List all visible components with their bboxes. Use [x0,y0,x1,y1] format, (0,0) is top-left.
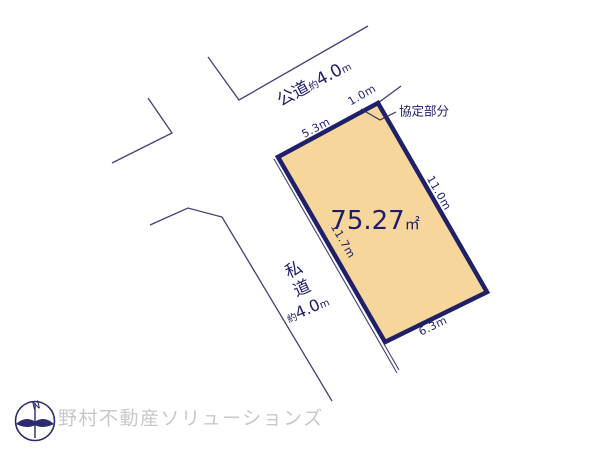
road-edge-west-corner [112,98,172,163]
road-edge-northeast-extension [378,86,401,103]
land-plot-diagram: N 公道約4.0m 5.3m 1.0m 11.0m 11.7m 6.3m 協定部… [0,0,600,450]
agreement-portion-label: 協定部分 [399,101,449,120]
plot-area-value: 75.27 [330,206,404,236]
private-road-name: 私道 [279,259,312,303]
company-watermark: 野村不動産ソリューションズ [58,404,324,431]
diagram-canvas: N [0,0,600,450]
plot-area-label: 75.27㎡ [330,206,419,236]
compass-n-letter: N [31,398,42,413]
plot-south-corner-extension-line [384,344,399,370]
compass-north-icon: N [16,398,55,440]
plot-area-unit: ㎡ [405,215,420,233]
